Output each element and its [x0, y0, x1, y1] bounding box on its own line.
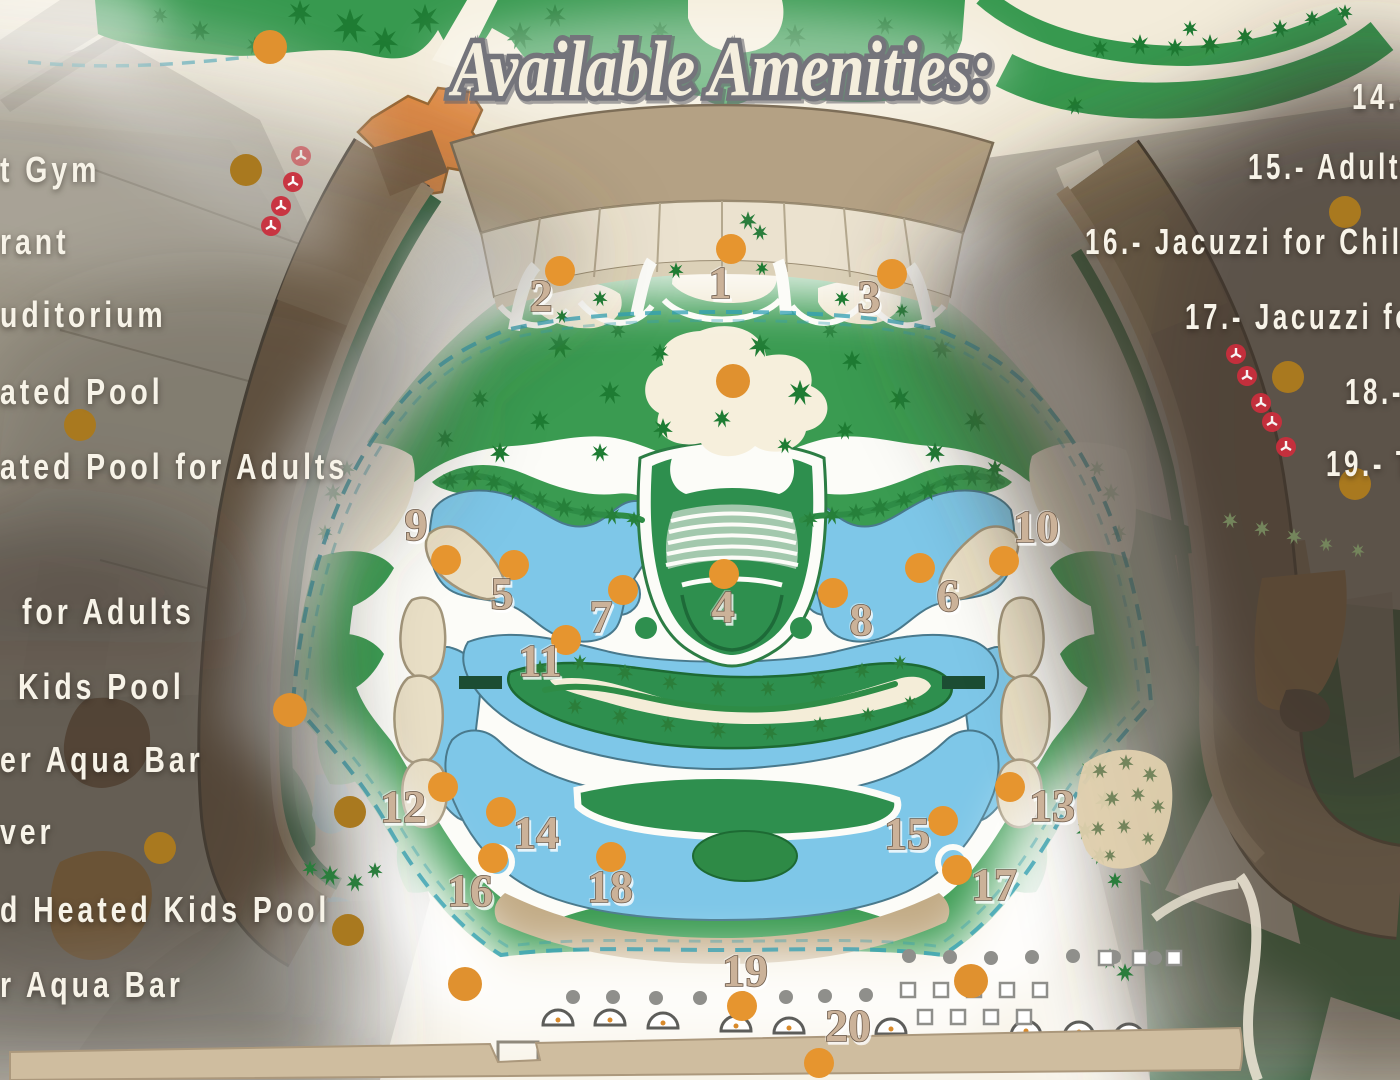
svg-text:9: 9: [405, 499, 428, 550]
svg-text:19: 19: [722, 945, 768, 996]
svg-text:17: 17: [971, 859, 1017, 910]
svg-text:16: 16: [447, 865, 493, 916]
svg-text:4: 4: [712, 581, 735, 632]
svg-text:11: 11: [518, 635, 561, 686]
svg-text:10: 10: [1013, 501, 1059, 552]
svg-text:12: 12: [380, 781, 426, 832]
svg-text:3: 3: [858, 271, 881, 322]
svg-text:6: 6: [937, 570, 960, 621]
svg-text:15: 15: [884, 808, 930, 859]
svg-text:8: 8: [850, 594, 873, 645]
svg-text:14: 14: [513, 807, 559, 858]
svg-text:1: 1: [709, 257, 732, 308]
svg-text:2: 2: [530, 270, 553, 321]
svg-text:5: 5: [491, 568, 514, 619]
svg-text:20: 20: [825, 1000, 871, 1051]
svg-text:Available Amenities:: Available Amenities:: [448, 25, 992, 112]
svg-text:13: 13: [1029, 780, 1075, 831]
svg-text:7: 7: [590, 591, 613, 642]
svg-text:18: 18: [587, 861, 633, 912]
